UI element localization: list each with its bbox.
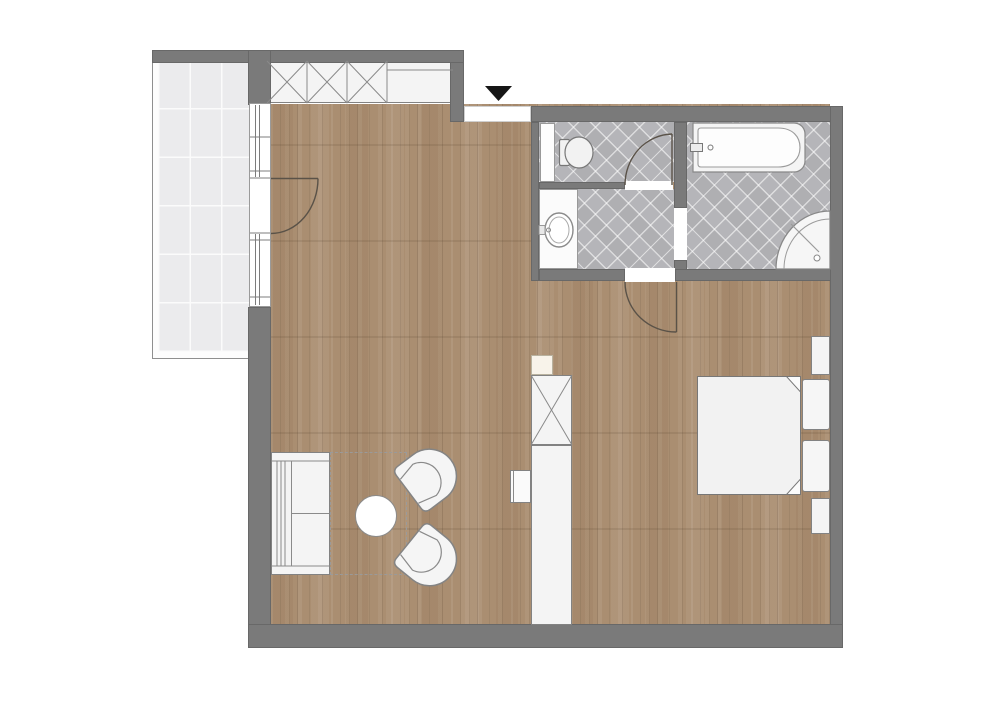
double-bed (697, 376, 801, 495)
bathroom-floor (687, 122, 830, 269)
partition-wall (531, 445, 572, 625)
bathroom-bottom-wall-left (539, 269, 625, 281)
wc-divider-wall (539, 182, 625, 189)
balcony-floor (158, 62, 249, 352)
pillow-lower (802, 440, 830, 492)
pillow-upper (802, 379, 830, 430)
entry-door (464, 106, 531, 122)
balcony-window (249, 103, 271, 307)
nightstand-upper (811, 336, 830, 375)
column (531, 355, 553, 375)
floor-plan (0, 0, 1000, 707)
coffee-table (355, 495, 397, 537)
nightstand-lower (811, 498, 830, 534)
top-wall-left (152, 50, 464, 63)
washbasin-counter (539, 189, 578, 269)
closet (267, 61, 453, 103)
right-wall (830, 106, 843, 648)
bath-vertical-wall-upper (674, 122, 687, 208)
top-wall-right (531, 106, 842, 122)
bathroom-left-wall (531, 122, 539, 281)
sofa (271, 452, 330, 575)
left-wall-upper (248, 50, 271, 105)
entry-marker-icon (485, 86, 512, 101)
bottom-wall (248, 624, 843, 648)
shower-room-passage (674, 208, 687, 260)
wall-shelf (510, 470, 531, 503)
duct-shaft (540, 123, 555, 182)
partition-wardrobe (531, 375, 572, 445)
wc-floor (539, 122, 674, 182)
bathroom-door-opening (625, 268, 675, 282)
entry-step-wall (450, 62, 464, 122)
wc-door-opening (625, 181, 673, 190)
left-wall-lower (248, 307, 271, 648)
bathroom-bottom-wall-right (675, 269, 843, 281)
